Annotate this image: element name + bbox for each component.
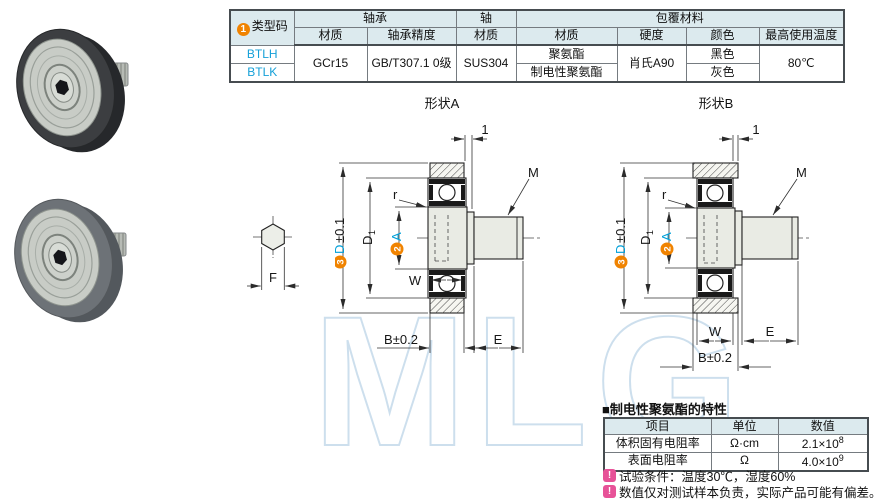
prop-header-unit: 单位 — [711, 418, 778, 435]
svg-text:D: D — [335, 245, 347, 254]
dim-w-label: W — [409, 273, 422, 288]
header-type-code: 1类型码 — [230, 10, 294, 45]
dim-d-label: 3 D ±0.1 — [335, 218, 347, 269]
svg-text:1: 1 — [367, 230, 377, 235]
dim-d-label: 3 D ±0.1 — [613, 218, 628, 269]
svg-text:±0.1: ±0.1 — [613, 218, 628, 243]
header-hardness: 硬度 — [617, 28, 686, 46]
dim-w-label: W — [709, 324, 722, 339]
hexagon-shape — [262, 224, 285, 250]
svg-text:3: 3 — [336, 259, 347, 264]
svg-text:A: A — [389, 232, 404, 241]
svg-text:±0.1: ±0.1 — [335, 218, 347, 243]
dim-a-label: 2 A — [659, 232, 674, 256]
type-code-badge: 1 — [237, 23, 250, 36]
prop-unit-volume-resistivity: Ω·cm — [711, 435, 778, 453]
shape-b-title: 形状B — [699, 96, 734, 111]
cell-shaft-material: SUS304 — [456, 45, 516, 82]
group-coating: 包覆材料 — [516, 10, 844, 28]
shaft-section — [697, 208, 798, 268]
catalog-page: MLG — [0, 0, 886, 504]
group-bearing: 轴承 — [294, 10, 456, 28]
prop-value-volume-resistivity: 2.1×108 — [778, 435, 868, 453]
svg-text:A: A — [659, 232, 674, 241]
group-shaft: 轴 — [456, 10, 516, 28]
dim-m-label: M — [528, 165, 539, 180]
dim-r-label: r — [393, 187, 398, 202]
cell-max-temp: 80℃ — [759, 45, 844, 82]
dim-e-label: E — [494, 332, 503, 347]
cell-bearing-material: GCr15 — [294, 45, 367, 82]
cell-coating-btlk: 制电性聚氨酯 — [516, 64, 617, 83]
header-color: 颜色 — [686, 28, 759, 46]
product-photo-gray — [8, 180, 138, 350]
svg-text:2: 2 — [393, 246, 404, 251]
prop-item-volume-resistivity: 体积固有电阻率 — [604, 435, 711, 453]
cell-coating-btlh: 聚氨酯 — [516, 45, 617, 64]
cell-hardness: 肖氏A90 — [617, 45, 686, 82]
dim-a-label: 2 A — [389, 232, 404, 256]
dim-d1-label: D 1 — [638, 230, 655, 245]
spec-table: 1类型码 轴承 轴 包覆材料 材质 轴承精度 材质 材质 硬度 颜色 最高使用温… — [229, 9, 845, 83]
dim-one-label: 1 — [752, 122, 759, 137]
header-shaft-material: 材质 — [456, 28, 516, 46]
dim-m-label: M — [796, 165, 807, 180]
header-bearing-precision: 轴承精度 — [367, 28, 456, 46]
svg-text:3: 3 — [617, 259, 628, 264]
header-max-temp: 最高使用温度 — [759, 28, 844, 46]
svg-text:2: 2 — [663, 246, 674, 251]
properties-table: 项目 单位 数值 体积固有电阻率 Ω·cm 2.1×108 表面电阻率 Ω 4.… — [603, 417, 869, 472]
svg-text:1: 1 — [645, 230, 655, 235]
shape-a-drawing: 形状A — [335, 95, 555, 385]
shape-a-title: 形状A — [425, 96, 460, 111]
shape-b-drawing: 形状B — [600, 95, 830, 385]
dim-b-label: B±0.2 — [384, 332, 418, 347]
dim-d1-label: D 1 — [360, 230, 377, 245]
dim-f-label: F — [269, 270, 277, 285]
shaft-section — [428, 207, 523, 269]
prop-header-value: 数值 — [778, 418, 868, 435]
header-coating-material: 材质 — [516, 28, 617, 46]
cell-color-btlh: 黑色 — [686, 45, 759, 64]
svg-text:D: D — [360, 236, 375, 245]
note-disclaimer: ! 数值仅对测试样本负责，实际产品可能有偏差。 — [603, 482, 882, 501]
prop-header-item: 项目 — [604, 418, 711, 435]
cell-code-btlk: BTLK — [230, 64, 294, 83]
cell-color-btlk: 灰色 — [686, 64, 759, 83]
dim-b-label: B±0.2 — [698, 350, 732, 365]
product-photo-black — [8, 8, 138, 178]
properties-title: ■制电性聚氨酯的特性 — [602, 399, 727, 418]
header-bearing-material: 材质 — [294, 28, 367, 46]
roller-body — [8, 186, 136, 336]
svg-text:D: D — [638, 236, 653, 245]
dim-e-label: E — [766, 324, 775, 339]
cell-code-btlh: BTLH — [230, 45, 294, 64]
roller-body — [8, 16, 138, 166]
dim-r-label: r — [662, 187, 667, 202]
cell-bearing-precision: GB/T307.1 0级 — [367, 45, 456, 82]
svg-text:D: D — [613, 245, 628, 254]
hex-end-view: F — [238, 198, 310, 304]
exclamation-icon: ! — [603, 485, 616, 498]
dim-one-label: 1 — [481, 122, 488, 137]
note-text: 数值仅对测试样本负责，实际产品可能有偏差。 — [619, 482, 882, 501]
exclamation-icon: ! — [603, 469, 616, 482]
type-code-label: 类型码 — [252, 19, 288, 33]
